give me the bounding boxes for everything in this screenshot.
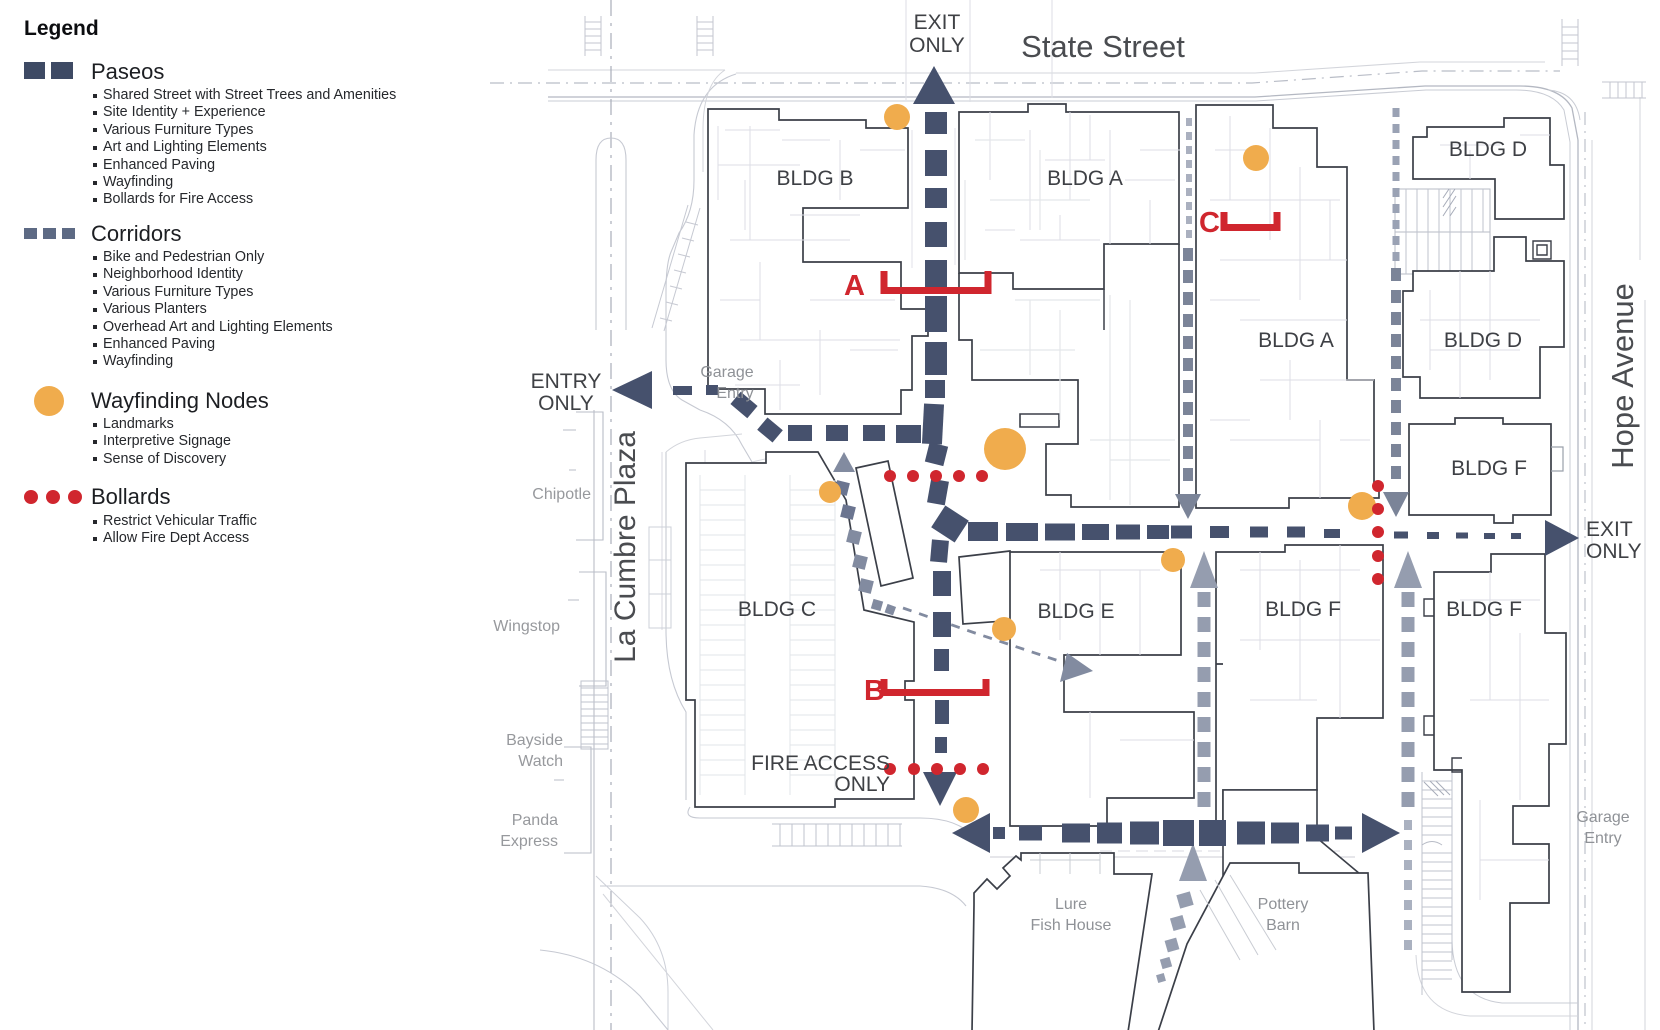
svg-text:B: B bbox=[864, 675, 885, 707]
svg-text:Chipotle: Chipotle bbox=[532, 486, 591, 503]
svg-text:C: C bbox=[1199, 207, 1220, 239]
svg-text:Bayside: Bayside bbox=[506, 732, 563, 749]
svg-text:Garage: Garage bbox=[1576, 809, 1629, 826]
svg-text:ENTRY: ENTRY bbox=[531, 370, 602, 393]
svg-text:Hope Avenue: Hope Avenue bbox=[1605, 283, 1640, 469]
svg-text:EXIT: EXIT bbox=[914, 11, 961, 34]
svg-text:BLDG A: BLDG A bbox=[1047, 167, 1123, 190]
svg-text:Lure: Lure bbox=[1055, 896, 1087, 913]
svg-text:BLDG A: BLDG A bbox=[1258, 329, 1334, 352]
svg-text:La Cumbre Plaza: La Cumbre Plaza bbox=[609, 431, 642, 663]
svg-text:BLDG D: BLDG D bbox=[1449, 138, 1527, 161]
svg-text:Barn: Barn bbox=[1266, 917, 1300, 934]
svg-text:Panda: Panda bbox=[512, 812, 558, 829]
svg-text:ONLY: ONLY bbox=[909, 34, 965, 57]
svg-text:State Street: State Street bbox=[1021, 29, 1185, 64]
svg-text:BLDG F: BLDG F bbox=[1265, 598, 1341, 621]
svg-text:BLDG F: BLDG F bbox=[1451, 457, 1527, 480]
svg-text:A: A bbox=[844, 270, 865, 302]
svg-text:Express: Express bbox=[500, 833, 558, 850]
svg-text:Entry: Entry bbox=[716, 385, 753, 402]
svg-text:BLDG D: BLDG D bbox=[1444, 329, 1522, 352]
svg-text:FIRE ACCESS: FIRE ACCESS bbox=[751, 752, 890, 775]
svg-text:Garage: Garage bbox=[700, 364, 753, 381]
svg-text:ONLY: ONLY bbox=[834, 773, 890, 796]
svg-text:Entry: Entry bbox=[1584, 830, 1621, 847]
svg-text:BLDG C: BLDG C bbox=[738, 598, 816, 621]
svg-text:BLDG B: BLDG B bbox=[776, 167, 853, 190]
svg-text:Watch: Watch bbox=[518, 753, 563, 770]
svg-text:Wingstop: Wingstop bbox=[493, 618, 560, 635]
svg-text:ONLY: ONLY bbox=[1586, 540, 1642, 563]
svg-text:BLDG F: BLDG F bbox=[1446, 598, 1522, 621]
svg-text:Fish House: Fish House bbox=[1031, 917, 1112, 934]
svg-text:EXIT: EXIT bbox=[1586, 518, 1633, 541]
svg-text:Pottery: Pottery bbox=[1258, 896, 1309, 913]
svg-text:BLDG E: BLDG E bbox=[1037, 600, 1114, 623]
svg-text:ONLY: ONLY bbox=[538, 392, 594, 415]
